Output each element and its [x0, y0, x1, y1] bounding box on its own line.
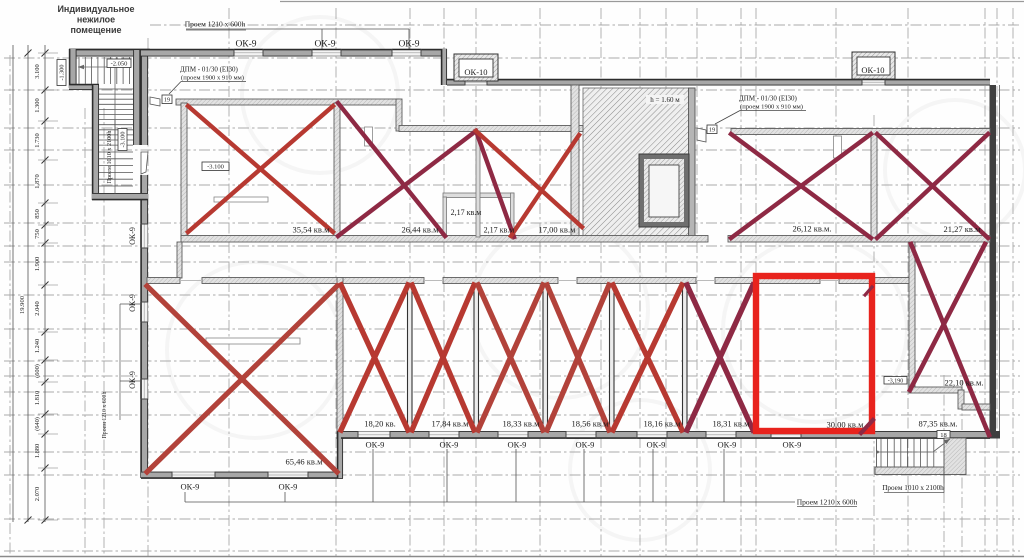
- svg-text:19: 19: [709, 126, 715, 133]
- svg-text:ОК-9: ОК-9: [279, 482, 298, 492]
- svg-text:Проем 1210 х 600h: Проем 1210 х 600h: [102, 392, 108, 439]
- svg-text:ОК-9: ОК-9: [314, 40, 335, 50]
- svg-text:22,10 кв.м.: 22,10 кв.м.: [944, 378, 983, 388]
- svg-text:ОК-9: ОК-9: [235, 40, 256, 50]
- svg-text:-3,190: -3,190: [888, 378, 904, 384]
- svg-text:-1.300: -1.300: [59, 65, 66, 81]
- svg-text:18,20 кв.: 18,20 кв.: [364, 419, 396, 429]
- svg-text:26,44 кв.м: 26,44 кв.м: [402, 225, 440, 235]
- svg-text:3.100: 3.100: [34, 64, 41, 78]
- svg-text:-3.100: -3.100: [207, 164, 224, 171]
- svg-text:ОК-9: ОК-9: [783, 440, 802, 450]
- svg-text:17,84 кв.м: 17,84 кв.м: [432, 419, 470, 429]
- svg-text:2.070: 2.070: [34, 487, 41, 501]
- svg-text:17,00 кв.м: 17,00 кв.м: [539, 225, 577, 235]
- svg-text:850: 850: [34, 209, 41, 219]
- svg-text:нежилое: нежилое: [77, 15, 115, 25]
- svg-text:-2.050: -2.050: [111, 61, 128, 68]
- svg-text:(600): (600): [34, 364, 41, 378]
- svg-text:30,00 кв.м: 30,00 кв.м: [827, 420, 865, 430]
- svg-text:ОК-9: ОК-9: [508, 440, 527, 450]
- svg-text:ДПМ - 01/30 (EI30): ДПМ - 01/30 (EI30): [180, 66, 239, 74]
- svg-text:18,33 кв.м: 18,33 кв.м: [503, 419, 541, 429]
- svg-text:Проем 1010 х 2100h: Проем 1010 х 2100h: [882, 484, 944, 492]
- svg-text:1.880: 1.880: [34, 444, 41, 458]
- svg-text:1.810: 1.810: [34, 391, 41, 405]
- svg-text:26,12 кв.м.: 26,12 кв.м.: [792, 224, 831, 234]
- svg-text:ОК-10: ОК-10: [861, 65, 884, 75]
- svg-text:ОК-9: ОК-9: [128, 371, 137, 389]
- svg-text:ОК-9: ОК-9: [440, 440, 459, 450]
- svg-text:Индивидуальное: Индивидуальное: [57, 4, 134, 14]
- svg-text:18,16 кв.м: 18,16 кв.м: [644, 419, 682, 429]
- svg-text:ОК-9: ОК-9: [718, 440, 737, 450]
- svg-text:(проем 1900 х 910 мм): (проем 1900 х 910 мм): [740, 104, 803, 111]
- svg-text:18,31 кв.м: 18,31 кв.м: [713, 419, 751, 429]
- svg-text:(640): (640): [34, 417, 41, 431]
- svg-text:ОК-9: ОК-9: [647, 440, 666, 450]
- svg-text:1.300: 1.300: [34, 98, 41, 112]
- svg-text:ОК-9: ОК-9: [576, 440, 595, 450]
- svg-text:65,46 кв.м: 65,46 кв.м: [286, 457, 324, 467]
- svg-text:Проем 1010 х 2100h: Проем 1010 х 2100h: [106, 130, 113, 184]
- svg-text:750: 750: [34, 229, 41, 239]
- svg-text:ОК-9: ОК-9: [181, 482, 200, 492]
- svg-text:h = 1.60 м: h = 1.60 м: [650, 96, 680, 104]
- svg-text:помещение: помещение: [70, 25, 121, 35]
- svg-text:(проем 1900 х 910 мм): (проем 1900 х 910 мм): [181, 75, 244, 82]
- svg-text:ОК-9: ОК-9: [398, 40, 419, 50]
- svg-text:19.900: 19.900: [19, 295, 26, 314]
- svg-text:2,17 кв.м: 2,17 кв.м: [484, 226, 515, 235]
- svg-text:21,27 кв.м: 21,27 кв.м: [944, 224, 982, 234]
- svg-text:87,35 кв.м.: 87,35 кв.м.: [918, 419, 957, 429]
- svg-text:1.870: 1.870: [34, 174, 41, 188]
- svg-text:ОК-10: ОК-10: [464, 67, 487, 77]
- svg-text:-3.100: -3.100: [120, 132, 127, 148]
- svg-text:19: 19: [164, 96, 170, 103]
- svg-text:2,17 кв.м: 2,17 кв.м: [451, 208, 482, 217]
- svg-text:35,54 кв.м: 35,54 кв.м: [293, 225, 331, 235]
- svg-text:1.240: 1.240: [34, 339, 41, 353]
- svg-text:2.040: 2.040: [34, 301, 41, 315]
- svg-text:ДПМ - 01/30 (EI30): ДПМ - 01/30 (EI30): [739, 95, 798, 103]
- svg-text:ОК-9: ОК-9: [128, 294, 137, 312]
- svg-text:1.900: 1.900: [34, 257, 41, 271]
- svg-text:ОК-9: ОК-9: [366, 440, 385, 450]
- svg-text:1.730: 1.730: [34, 133, 41, 147]
- svg-text:18,56 кв.м: 18,56 кв.м: [572, 419, 610, 429]
- svg-text:Проем 1210 х 600h: Проем 1210 х 600h: [797, 498, 858, 507]
- svg-text:ОК-9: ОК-9: [128, 227, 137, 245]
- svg-text:Проем 1210 х 600h: Проем 1210 х 600h: [185, 20, 246, 29]
